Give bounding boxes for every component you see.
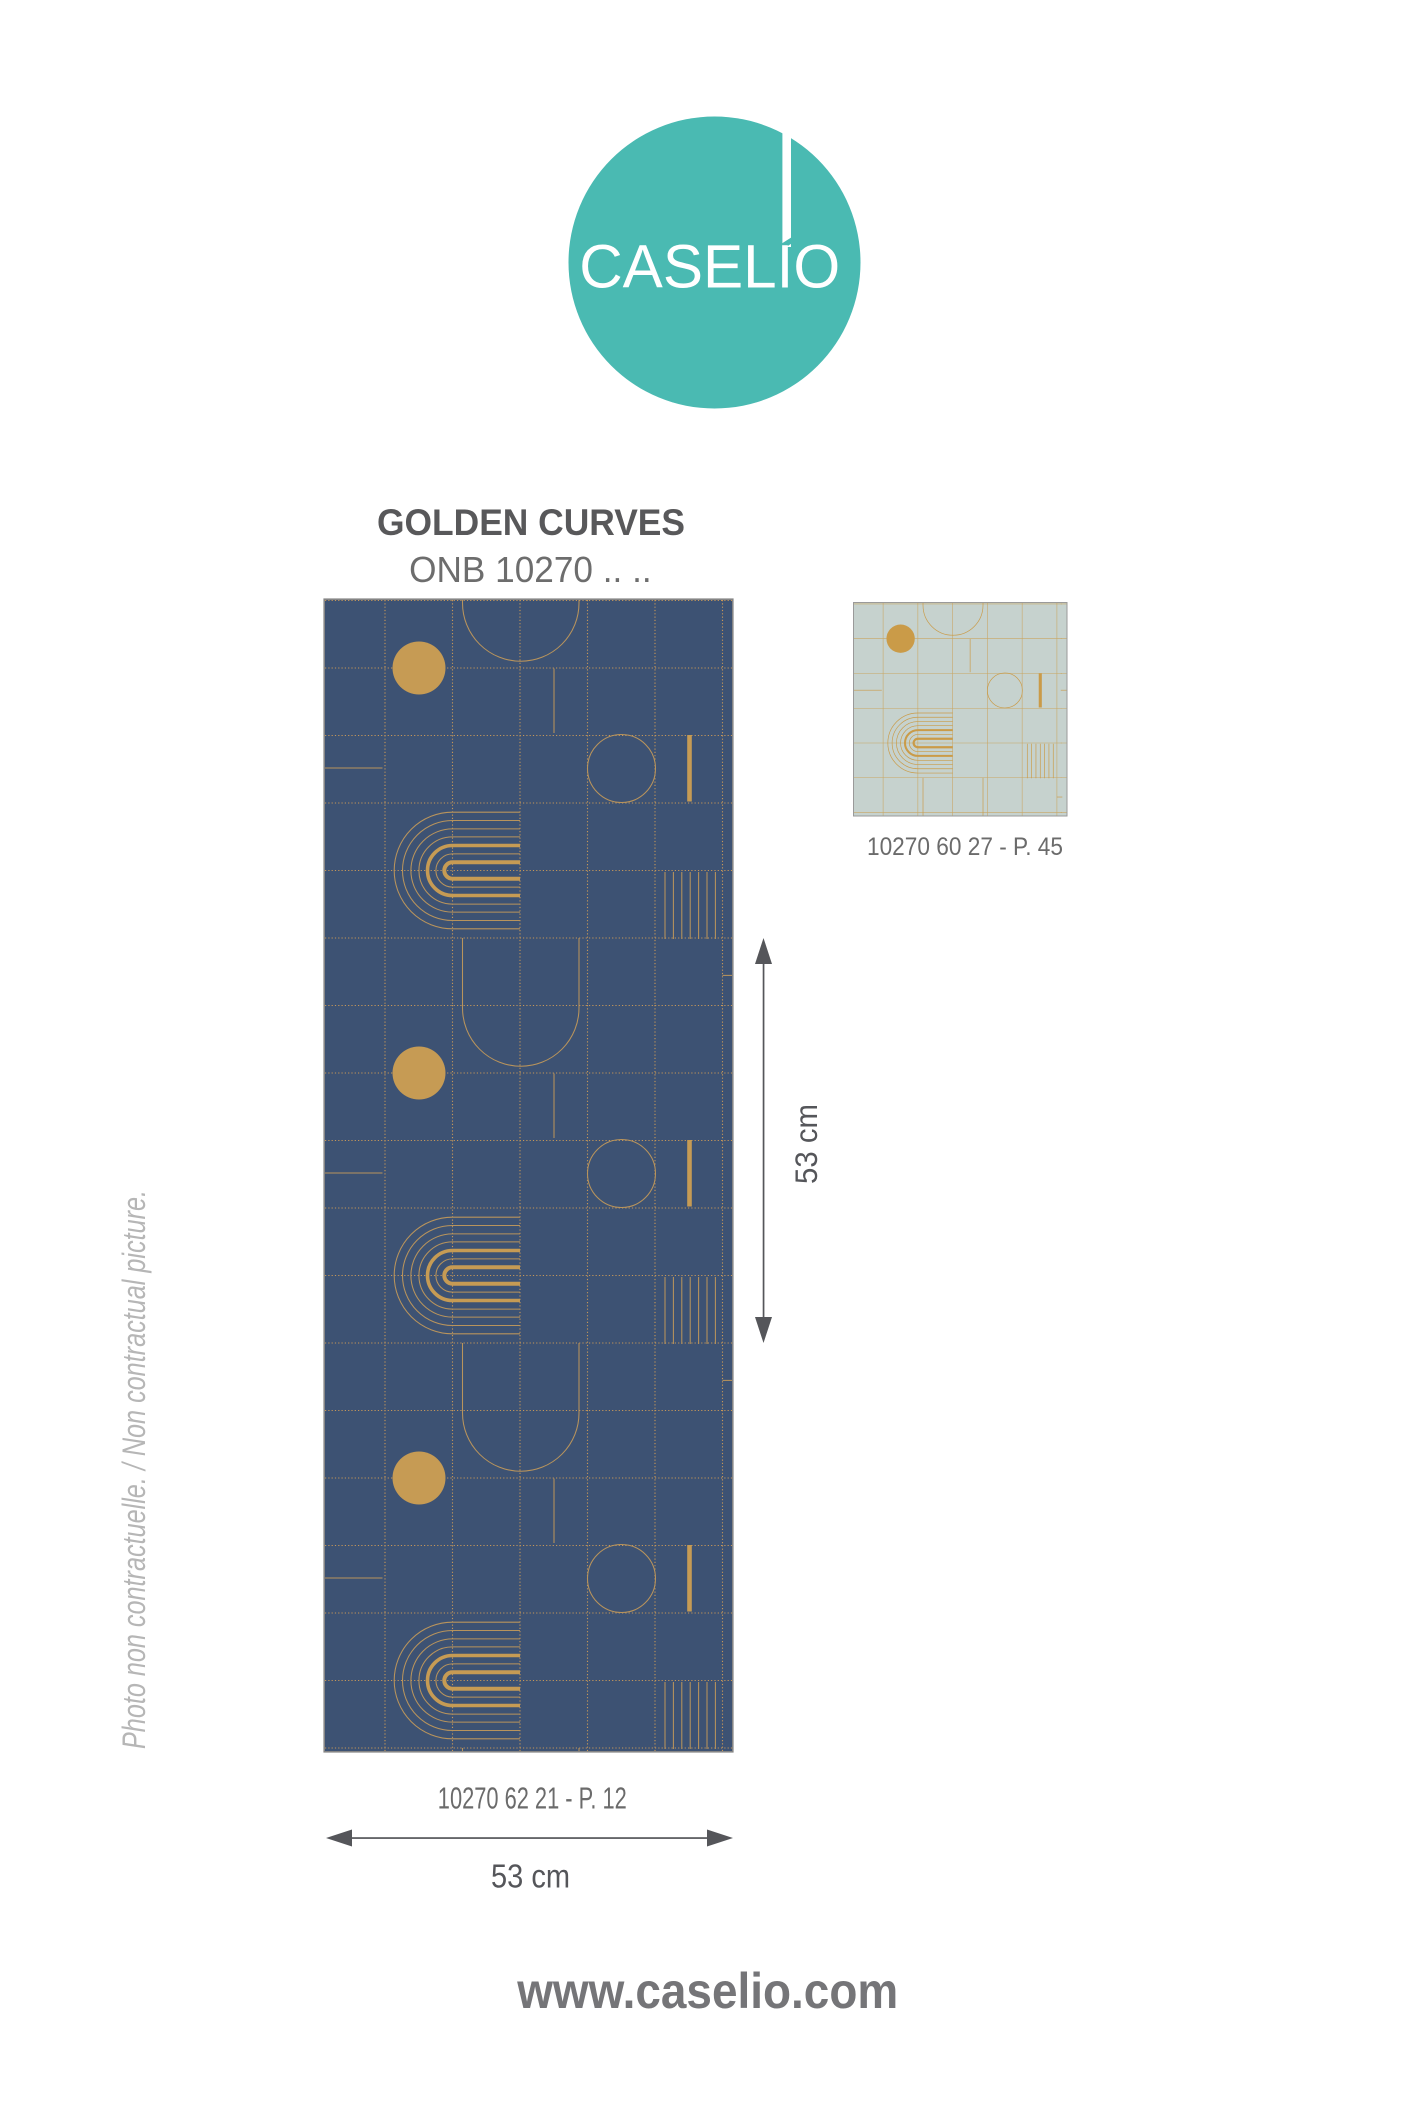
svg-text:53 cm: 53 cm	[491, 1857, 570, 1894]
svg-text:www.caselio.com: www.caselio.com	[516, 1963, 898, 2019]
svg-text:10270 62 21 - P. 12: 10270 62 21 - P. 12	[438, 1781, 627, 1815]
svg-text:CASELIO: CASELIO	[579, 233, 840, 302]
svg-text:10270 60 27 - P. 45: 10270 60 27 - P. 45	[867, 833, 1063, 861]
svg-text:ONB 10270 .. ..: ONB 10270 .. ..	[409, 549, 652, 590]
svg-text:GOLDEN CURVES: GOLDEN CURVES	[377, 501, 685, 543]
svg-text:53 cm: 53 cm	[788, 1104, 824, 1184]
svg-text:Photo non contractuelle. / Non: Photo non contractuelle. / Non contractu…	[116, 1190, 152, 1749]
